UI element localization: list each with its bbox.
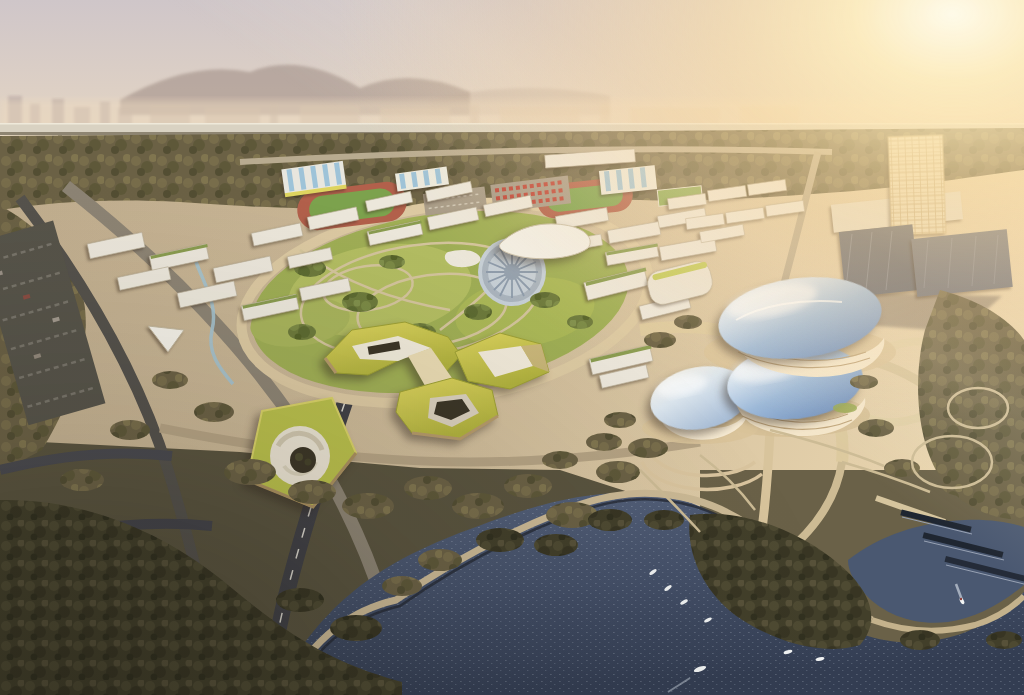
corner-vignette bbox=[0, 0, 1024, 695]
render-canvas bbox=[0, 0, 1024, 695]
aerial-campus-render bbox=[0, 0, 1024, 695]
atmosphere bbox=[0, 0, 1024, 695]
